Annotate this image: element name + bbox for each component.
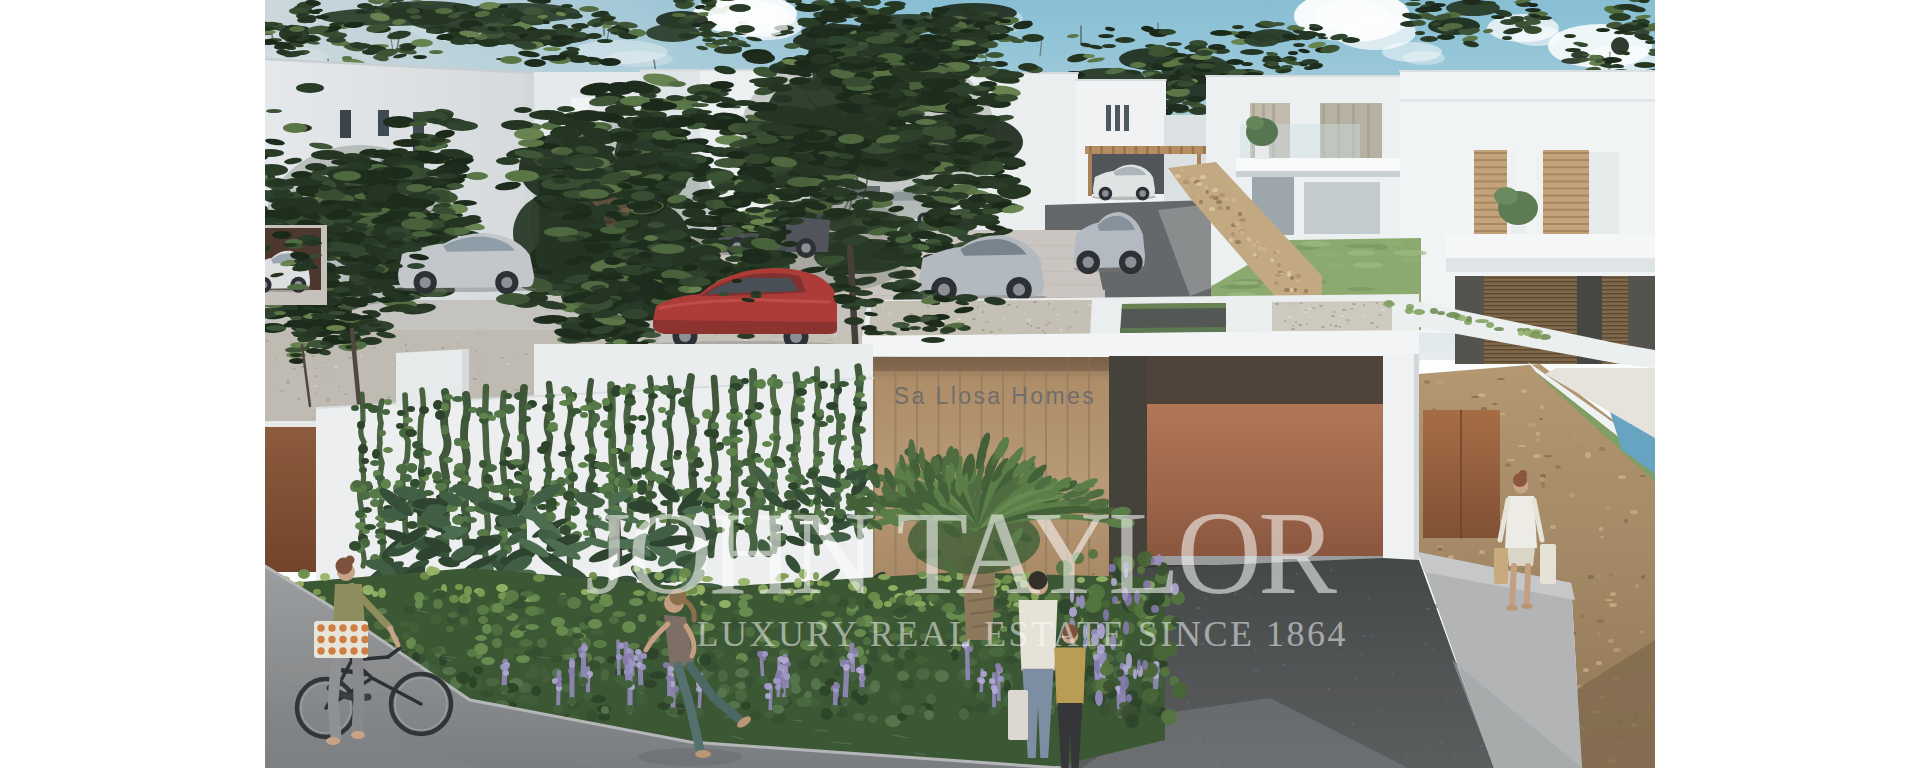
svg-text:JOHN TAYLOR: JOHN TAYLOR bbox=[585, 488, 1347, 619]
svg-text:LUXURY REAL ESTATE SINCE 1864: LUXURY REAL ESTATE SINCE 1864 bbox=[697, 614, 1352, 654]
